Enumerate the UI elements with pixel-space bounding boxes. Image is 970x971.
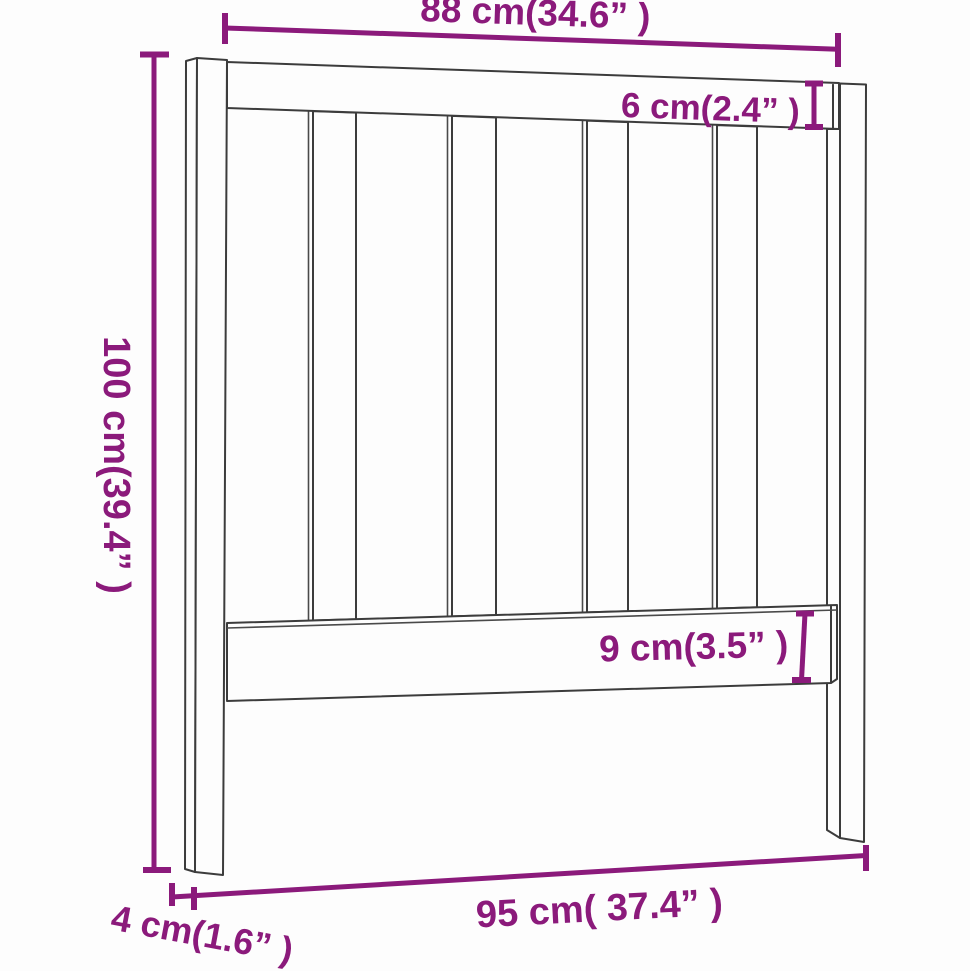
slat-1 bbox=[309, 111, 357, 621]
slat-4 bbox=[713, 125, 758, 609]
inner-width-label: 88 cm(34.6” ) bbox=[420, 0, 652, 37]
left-post bbox=[185, 58, 227, 875]
headboard-drawing bbox=[185, 58, 866, 875]
lower-rail-thickness-bar bbox=[802, 614, 806, 681]
diagram-canvas: 88 cm(34.6” ) 6 cm(2.4” ) 100 cm(39.4” ) bbox=[0, 0, 970, 971]
lower-rail-thickness-label: 9 cm(3.5” ) bbox=[599, 624, 789, 670]
slat-2 bbox=[448, 116, 497, 617]
overall-width-label: 95 cm( 37.4” ) bbox=[475, 882, 724, 937]
top-rail-thickness-label: 6 cm(2.4” ) bbox=[620, 86, 800, 131]
slat-3 bbox=[583, 121, 629, 613]
height-label: 100 cm(39.4” ) bbox=[95, 336, 137, 594]
right-post-front-face bbox=[840, 84, 866, 843]
overall-width-line bbox=[172, 856, 866, 898]
right-post bbox=[827, 84, 866, 843]
post-depth-label: 4 cm(1.6” ) bbox=[108, 897, 296, 971]
dimension-height: 100 cm(39.4” ) bbox=[95, 55, 171, 871]
dimension-inner-width: 88 cm(34.6” ) bbox=[225, 0, 838, 67]
right-post-side-face bbox=[827, 129, 840, 838]
headboard-dimension-diagram: 88 cm(34.6” ) 6 cm(2.4” ) 100 cm(39.4” ) bbox=[0, 0, 970, 971]
left-post-front-face bbox=[195, 58, 227, 875]
slats bbox=[309, 111, 758, 621]
